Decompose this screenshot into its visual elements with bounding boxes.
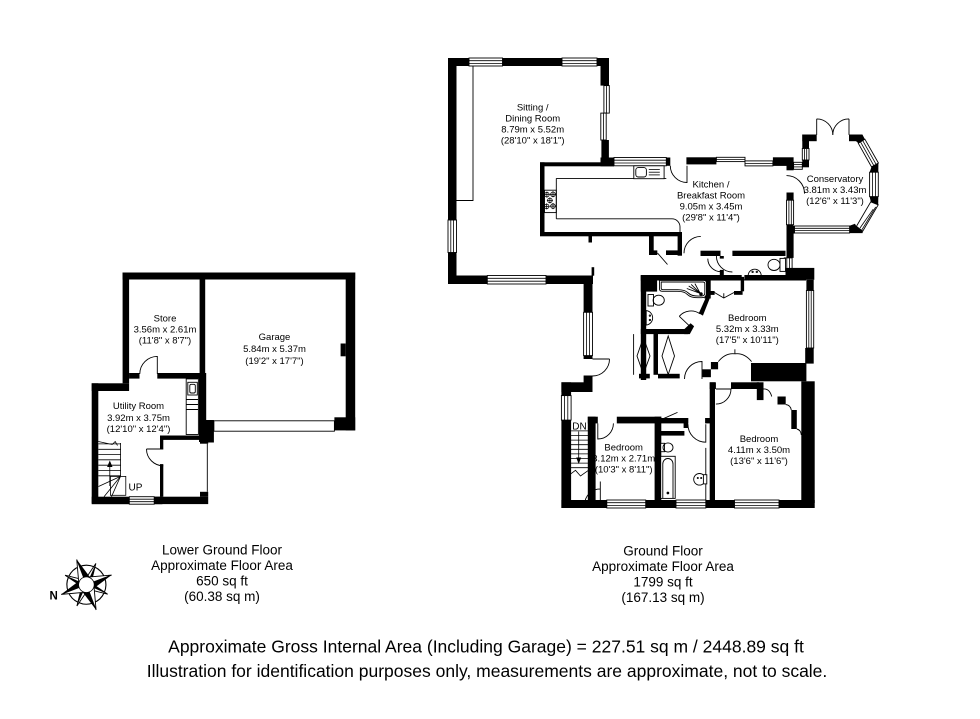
svg-text:Sitting /: Sitting / <box>517 103 549 114</box>
svg-text:5.32m x 3.33m: 5.32m x 3.33m <box>716 324 779 335</box>
svg-text:(167.13 sq m): (167.13 sq m) <box>621 590 704 605</box>
svg-text:5.84m x 5.37m: 5.84m x 5.37m <box>243 344 306 355</box>
svg-text:Approximate Gross Internal Are: Approximate Gross Internal Area (Includi… <box>168 637 804 657</box>
svg-text:(60.38 sq m): (60.38 sq m) <box>184 589 260 604</box>
svg-text:Bedroom: Bedroom <box>604 442 643 453</box>
svg-text:(13'6" x 11'6"): (13'6" x 11'6") <box>730 456 788 467</box>
svg-text:(17'5" x 10'11"): (17'5" x 10'11") <box>716 335 779 346</box>
svg-text:Breakfast Room: Breakfast Room <box>677 191 745 202</box>
svg-text:Approximate Floor Area: Approximate Floor Area <box>151 558 293 573</box>
svg-text:(12'6" x 11'3"): (12'6" x 11'3") <box>806 196 864 207</box>
svg-text:Ground Floor: Ground Floor <box>623 544 703 559</box>
svg-text:Bedroom: Bedroom <box>740 434 779 445</box>
svg-text:650 sq ft: 650 sq ft <box>196 574 248 589</box>
svg-text:3.81m x 3.43m: 3.81m x 3.43m <box>804 185 867 196</box>
svg-text:4.11m x 3.50m: 4.11m x 3.50m <box>728 445 790 456</box>
svg-text:1799 sq ft: 1799 sq ft <box>633 575 693 590</box>
svg-text:3.56m x 2.61m: 3.56m x 2.61m <box>134 324 197 335</box>
svg-text:Utility Room: Utility Room <box>113 401 164 412</box>
svg-text:Lower Ground Floor: Lower Ground Floor <box>162 543 283 558</box>
svg-text:Conservatory: Conservatory <box>807 174 864 185</box>
svg-text:Dining Room: Dining Room <box>505 114 560 125</box>
svg-text:Store: Store <box>154 313 177 324</box>
svg-text:N: N <box>50 591 58 603</box>
svg-text:Kitchen /: Kitchen / <box>693 180 730 191</box>
svg-text:(19'2" x 17'7"): (19'2" x 17'7") <box>245 356 303 367</box>
svg-text:(10'3" x 8'11"): (10'3" x 8'11") <box>595 464 653 475</box>
svg-text:Illustration for identificatio: Illustration for identification purposes… <box>147 661 828 681</box>
svg-text:3.12m x 2.71m: 3.12m x 2.71m <box>592 453 655 464</box>
svg-text:(28'10" x 18'1"): (28'10" x 18'1") <box>501 136 565 147</box>
svg-text:(12'10" x 12'4"): (12'10" x 12'4") <box>107 424 171 435</box>
svg-text:Garage: Garage <box>259 332 291 343</box>
svg-text:Bedroom: Bedroom <box>728 313 767 324</box>
svg-text:Approximate Floor Area: Approximate Floor Area <box>592 559 734 574</box>
svg-text:9.05m x 3.45m: 9.05m x 3.45m <box>680 202 743 213</box>
svg-text:UP: UP <box>129 483 143 494</box>
svg-text:8.79m x 5.52m: 8.79m x 5.52m <box>501 125 564 136</box>
svg-text:(11'8" x 8'7"): (11'8" x 8'7") <box>139 335 191 346</box>
svg-text:3.92m x 3.75m: 3.92m x 3.75m <box>107 413 170 424</box>
svg-text:(29'8" x 11'4"): (29'8" x 11'4") <box>682 213 740 224</box>
